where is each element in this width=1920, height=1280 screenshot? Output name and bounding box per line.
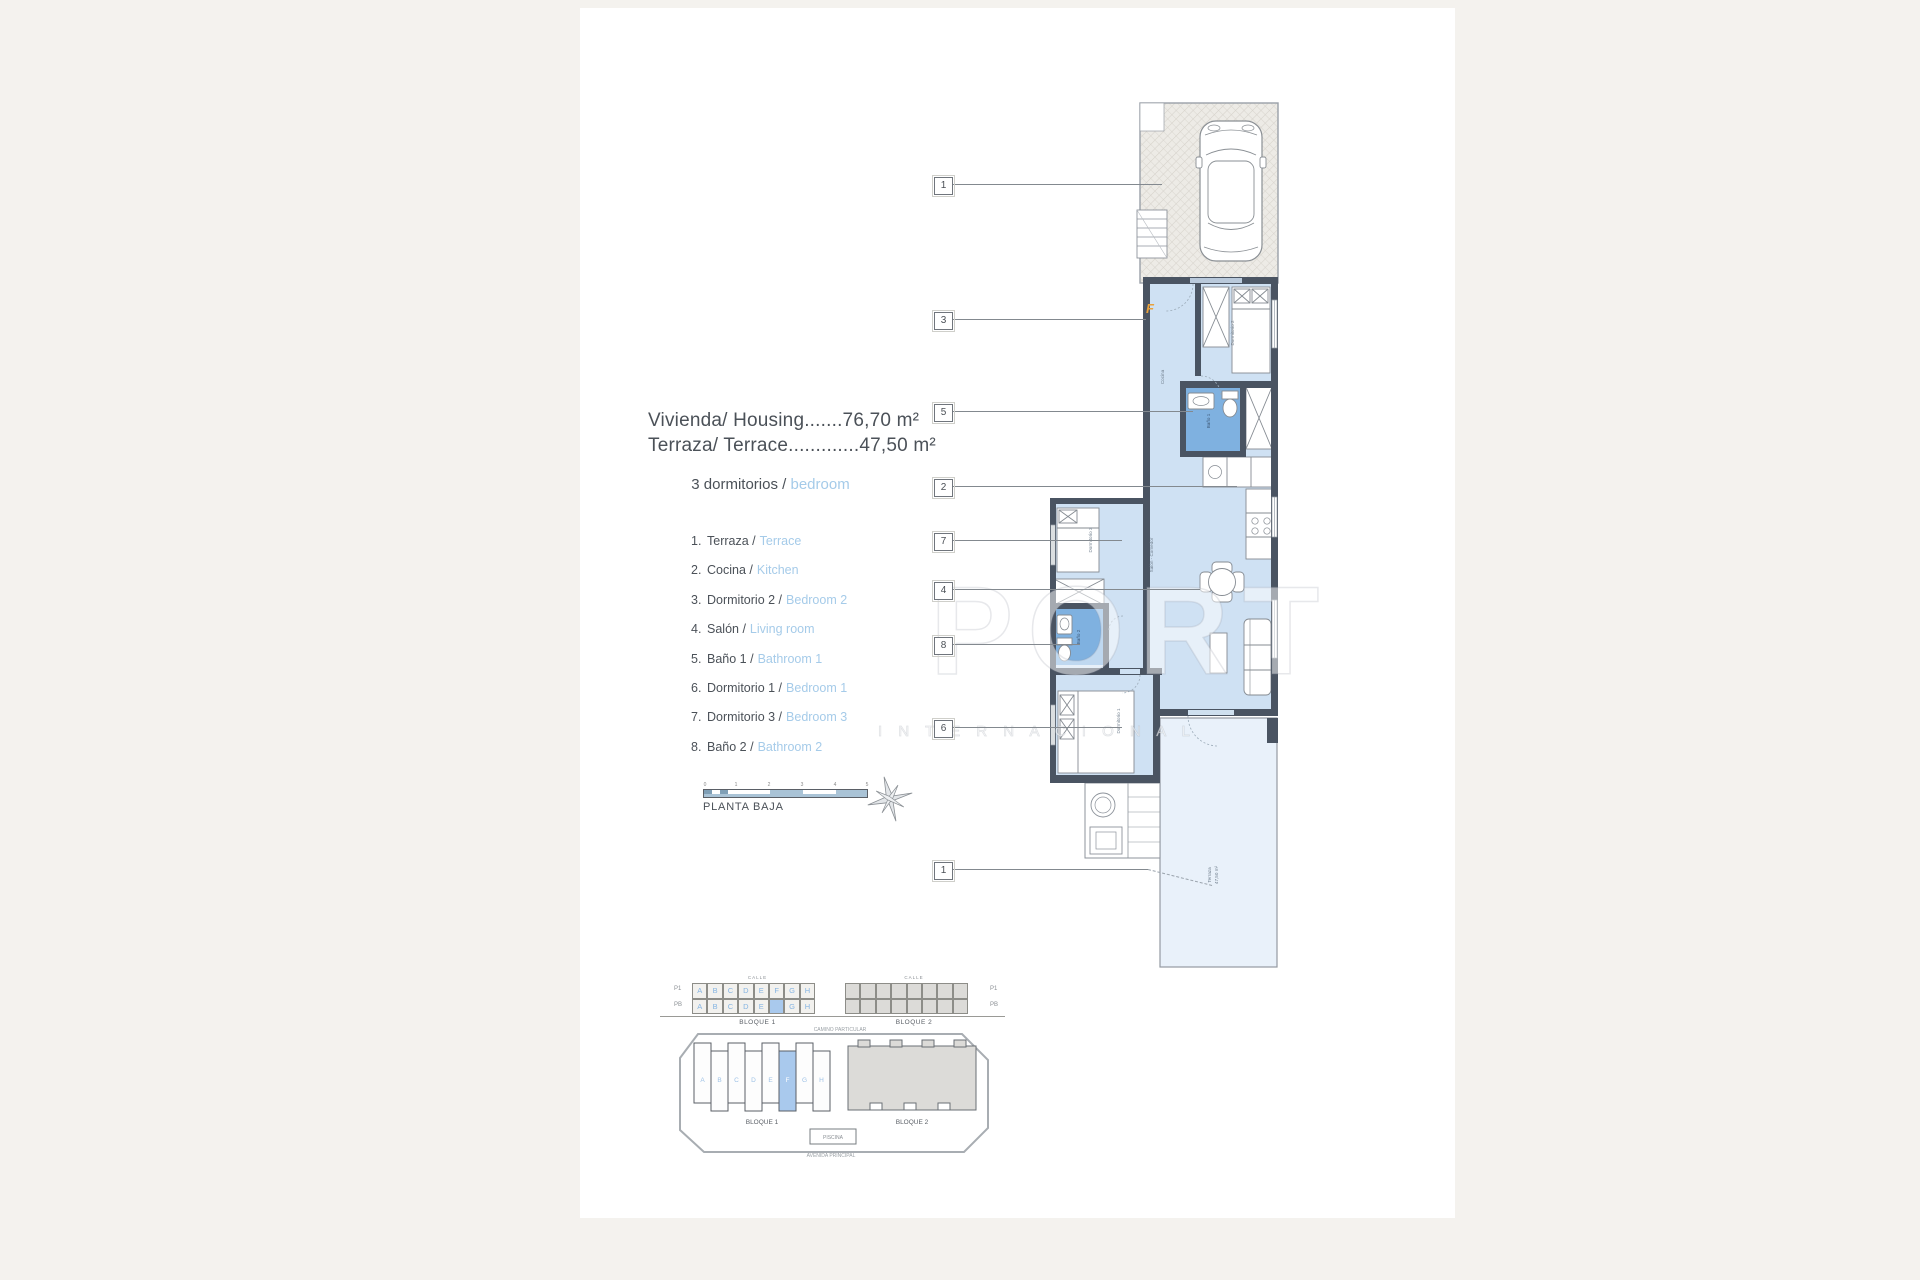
wardrobe-hall: [1246, 387, 1272, 449]
legend-en: Terrace: [760, 534, 802, 548]
bloque2-elevation: [845, 983, 968, 1014]
parking-notch: [1140, 103, 1164, 131]
unit-cell: A: [692, 999, 707, 1015]
floor-plan-drawing: F Dormitorio 2 Baño 1 Cocina Salón - Com…: [1040, 85, 1290, 985]
legend-num: 4.: [691, 622, 707, 636]
unit-cell: B: [707, 999, 722, 1015]
callout-2-kitchen: 2: [934, 479, 953, 497]
legend-es: Cocina /: [707, 563, 753, 577]
terrace-pillar: [1267, 718, 1278, 743]
housing-area-line: Vivienda/ Housing.......76,70 m²: [648, 408, 948, 433]
site-bloque1-label: BLOQUE 1: [746, 1119, 779, 1126]
unit-letter: A: [700, 1077, 705, 1084]
callout-4-living: 4: [934, 582, 953, 600]
unit-letter: E: [768, 1077, 773, 1084]
callout-1-terrace: 1: [934, 177, 953, 195]
unit-cell: H: [800, 983, 815, 999]
scale-bar: 0 1 2 3 4 5 PLANTA BAJA: [703, 782, 869, 816]
legend-item: 1.Terraza /Terrace: [691, 534, 847, 547]
bed-bedroom2: [1232, 287, 1270, 373]
legend-num: 6.: [691, 681, 707, 695]
legend-es: Terraza /: [707, 534, 756, 548]
unit-cell: C: [723, 983, 738, 999]
unit-letter: F: [786, 1077, 790, 1084]
unit-cell: F: [769, 983, 784, 999]
legend-es: Dormitorio 3 /: [707, 710, 782, 724]
floor-label-p1-right: P1: [990, 986, 997, 992]
legend-item: 2.Cocina /Kitchen: [691, 563, 847, 576]
legend-es: Baño 2 /: [707, 740, 754, 754]
legend-num: 2.: [691, 563, 707, 577]
site-bloque2-label: BLOQUE 2: [896, 1119, 929, 1126]
unit-cell: D: [738, 983, 753, 999]
unit-cell: D: [738, 999, 753, 1015]
legend-en: Kitchen: [757, 563, 799, 577]
street-label: CALLE: [845, 975, 983, 980]
legend-es: Salón /: [707, 622, 746, 636]
legend-num: 7.: [691, 710, 707, 724]
toilet-tank-icon: [1222, 391, 1238, 399]
watermark-text: PORT: [930, 560, 1333, 703]
callout-1-terrace-bottom: 1: [934, 862, 953, 880]
bloque1-label: BLOQUE 1: [692, 1019, 823, 1026]
bedrooms-subtitle: 3 dormitorios / bedroom: [648, 476, 893, 493]
legend-num: 8.: [691, 740, 707, 754]
wardrobe-bedroom2: [1203, 287, 1229, 347]
terrace-area-line: Terraza/ Terrace.............47,50 m²: [648, 433, 948, 458]
floor-label-pb-right: PB: [990, 1002, 998, 1008]
car-icon: [1196, 121, 1266, 261]
bloque1-elevation: A B C D E F G H A B C D E G H: [692, 983, 815, 1014]
bedrooms-subtitle-es: 3 dormitorios /: [691, 476, 786, 493]
floor-label-p1: P1: [674, 986, 681, 992]
label-terrace-2: 47,50 m²: [1214, 865, 1219, 884]
floor-label-pb: PB: [674, 1002, 682, 1008]
leader-line-1b: [952, 869, 1148, 870]
scale-tick: 3: [801, 782, 804, 788]
legend-en: Bedroom 3: [786, 710, 847, 724]
leader-line-5: [952, 411, 1193, 412]
entrance-letter: F: [1146, 301, 1155, 316]
legend-item: 7.Dormitorio 3 /Bedroom 3: [691, 710, 847, 723]
legend-es: Dormitorio 1 /: [707, 681, 782, 695]
unit-cell: E: [754, 999, 769, 1015]
leader-line-6: [952, 727, 1122, 728]
label-terrace-1: Terraza: [1207, 867, 1212, 883]
utility-room: [1085, 783, 1160, 858]
toilet-icon: [1223, 399, 1237, 417]
legend-item: 4.Salón /Living room: [691, 622, 847, 635]
site-plan-note: AVENIDA PRINCIPAL: [731, 1153, 931, 1159]
legend-es: Dormitorio 2 /: [707, 593, 782, 607]
leader-line-7: [952, 540, 1122, 541]
legend-en: Bedroom 1: [786, 681, 847, 695]
legend-es: Baño 1 /: [707, 652, 754, 666]
unit-cell: E: [754, 983, 769, 999]
scale-tick: 1: [735, 782, 738, 788]
unit-letter: C: [734, 1077, 739, 1084]
legend-item: 3.Dormitorio 2 /Bedroom 2: [691, 593, 847, 606]
label-bedroom2: Dormitorio 2: [1230, 320, 1235, 345]
callout-6-bedroom1: 6: [934, 720, 953, 738]
legend-item: 8.Baño 2 /Bathroom 2: [691, 740, 847, 753]
leader-line-8: [952, 644, 1080, 645]
unit-cell: G: [784, 999, 799, 1015]
parking-area: [1137, 103, 1278, 283]
unit-letter: B: [717, 1077, 721, 1084]
floorplan-page: PORT I N T E R N A C I O N A L Vivienda/…: [0, 0, 1920, 1280]
washing-machine-icon: [1091, 793, 1115, 817]
legend-num: 5.: [691, 652, 707, 666]
unit-letter: G: [802, 1077, 807, 1084]
terrace-floor: [1160, 718, 1277, 967]
water-tank-icon: [1090, 827, 1122, 854]
leader-line-3: [952, 319, 1146, 320]
legend-en: Bedroom 2: [786, 593, 847, 607]
planta-baja-label: PLANTA BAJA: [703, 801, 784, 813]
label-kitchen: Cocina: [1160, 369, 1165, 384]
unit-letter: H: [819, 1077, 824, 1084]
callout-7-bedroom3: 7: [934, 533, 953, 551]
scale-tick: 4: [834, 782, 837, 788]
leader-line-2: [952, 486, 1237, 487]
legend-num: 3.: [691, 593, 707, 607]
site-plan: A B C D E F G H BLOQUE 1 BLOQUE 2 PISCIN…: [670, 1030, 992, 1158]
legend-num: 1.: [691, 534, 707, 548]
elevation-diagram: P1 PB P1 PB CALLE CALLE A B C D E F G H …: [660, 975, 1005, 1035]
bloque2-mass: [848, 1040, 976, 1110]
unit-letter: D: [751, 1077, 756, 1084]
unit-cell: A: [692, 983, 707, 999]
leader-line-4: [952, 589, 1200, 590]
callout-3-bedroom2: 3: [934, 312, 953, 330]
scale-tick: 0: [704, 782, 707, 788]
pool-label: PISCINA: [823, 1135, 844, 1141]
ground-line: [660, 1016, 1005, 1017]
unit-cell: G: [784, 983, 799, 999]
legend-en: Living room: [750, 622, 815, 636]
area-title-block: Vivienda/ Housing.......76,70 m² Terraza…: [648, 408, 948, 458]
label-bathroom1: Baño 1: [1206, 413, 1211, 428]
legend-item: 6.Dormitorio 1 /Bedroom 1: [691, 681, 847, 694]
garage-door: [1190, 278, 1242, 283]
unit-cell: C: [723, 999, 738, 1015]
sink-icon: [1188, 393, 1214, 409]
legend-en: Bathroom 1: [758, 652, 823, 666]
street-label: CALLE: [692, 975, 823, 980]
bedrooms-subtitle-en: bedroom: [791, 476, 850, 493]
unit-cell-highlighted: [769, 999, 784, 1015]
bloque2-label: BLOQUE 2: [845, 1019, 983, 1026]
watermark-subtext: I N T E R N A C I O N A L: [878, 723, 1196, 740]
terrace-door: [1188, 710, 1234, 715]
scale-bar-graphic: [703, 789, 868, 798]
unit-cell: B: [707, 983, 722, 999]
legend-en: Bathroom 2: [758, 740, 823, 754]
leader-line-1: [952, 184, 1162, 185]
bloque1-units: [694, 1043, 830, 1111]
room-legend: 1.Terraza /Terrace 2.Cocina /Kitchen 3.D…: [691, 534, 847, 769]
unit-cell: H: [800, 999, 815, 1015]
scale-tick: 2: [768, 782, 771, 788]
exterior-stairs: [1137, 210, 1167, 258]
callout-5-bathroom1: 5: [934, 404, 953, 422]
callout-8-bathroom2: 8: [934, 637, 953, 655]
legend-item: 5.Baño 1 /Bathroom 1: [691, 652, 847, 665]
